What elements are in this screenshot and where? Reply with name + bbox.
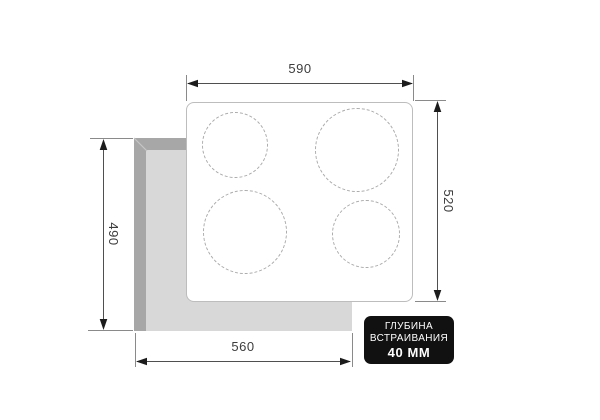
dim-left-arrow-down	[100, 319, 108, 330]
dim-label-left: 490	[106, 214, 120, 254]
dim-bottom-arrow-right	[340, 358, 351, 365]
burner-circle-bottom-left	[203, 190, 287, 274]
diagram-canvas: 590 520 490 560 ГЛУБИНА ВСТРАИВАНИЯ 40 М…	[0, 0, 600, 420]
burner-circle-top-right	[315, 108, 399, 192]
dim-label-top: 590	[270, 62, 330, 76]
burner-circle-top-left	[202, 112, 268, 178]
dim-top-arrow-left	[187, 80, 198, 87]
dim-right-arrow-down	[434, 290, 442, 301]
installation-depth-badge: ГЛУБИНА ВСТРАИВАНИЯ 40 ММ	[364, 316, 454, 364]
badge-line-2: ВСТРАИВАНИЯ	[370, 333, 448, 345]
dim-label-bottom: 560	[213, 340, 273, 354]
burner-circle-bottom-right	[332, 200, 400, 268]
dim-right-arrow-up	[434, 101, 442, 112]
badge-line-3: 40 ММ	[388, 345, 431, 360]
dim-label-right: 520	[441, 181, 455, 221]
dim-left-arrow-up	[100, 139, 108, 150]
dim-top-arrow-right	[402, 80, 413, 87]
badge-line-1: ГЛУБИНА	[385, 321, 433, 333]
dim-bottom-arrow-left	[136, 358, 147, 365]
